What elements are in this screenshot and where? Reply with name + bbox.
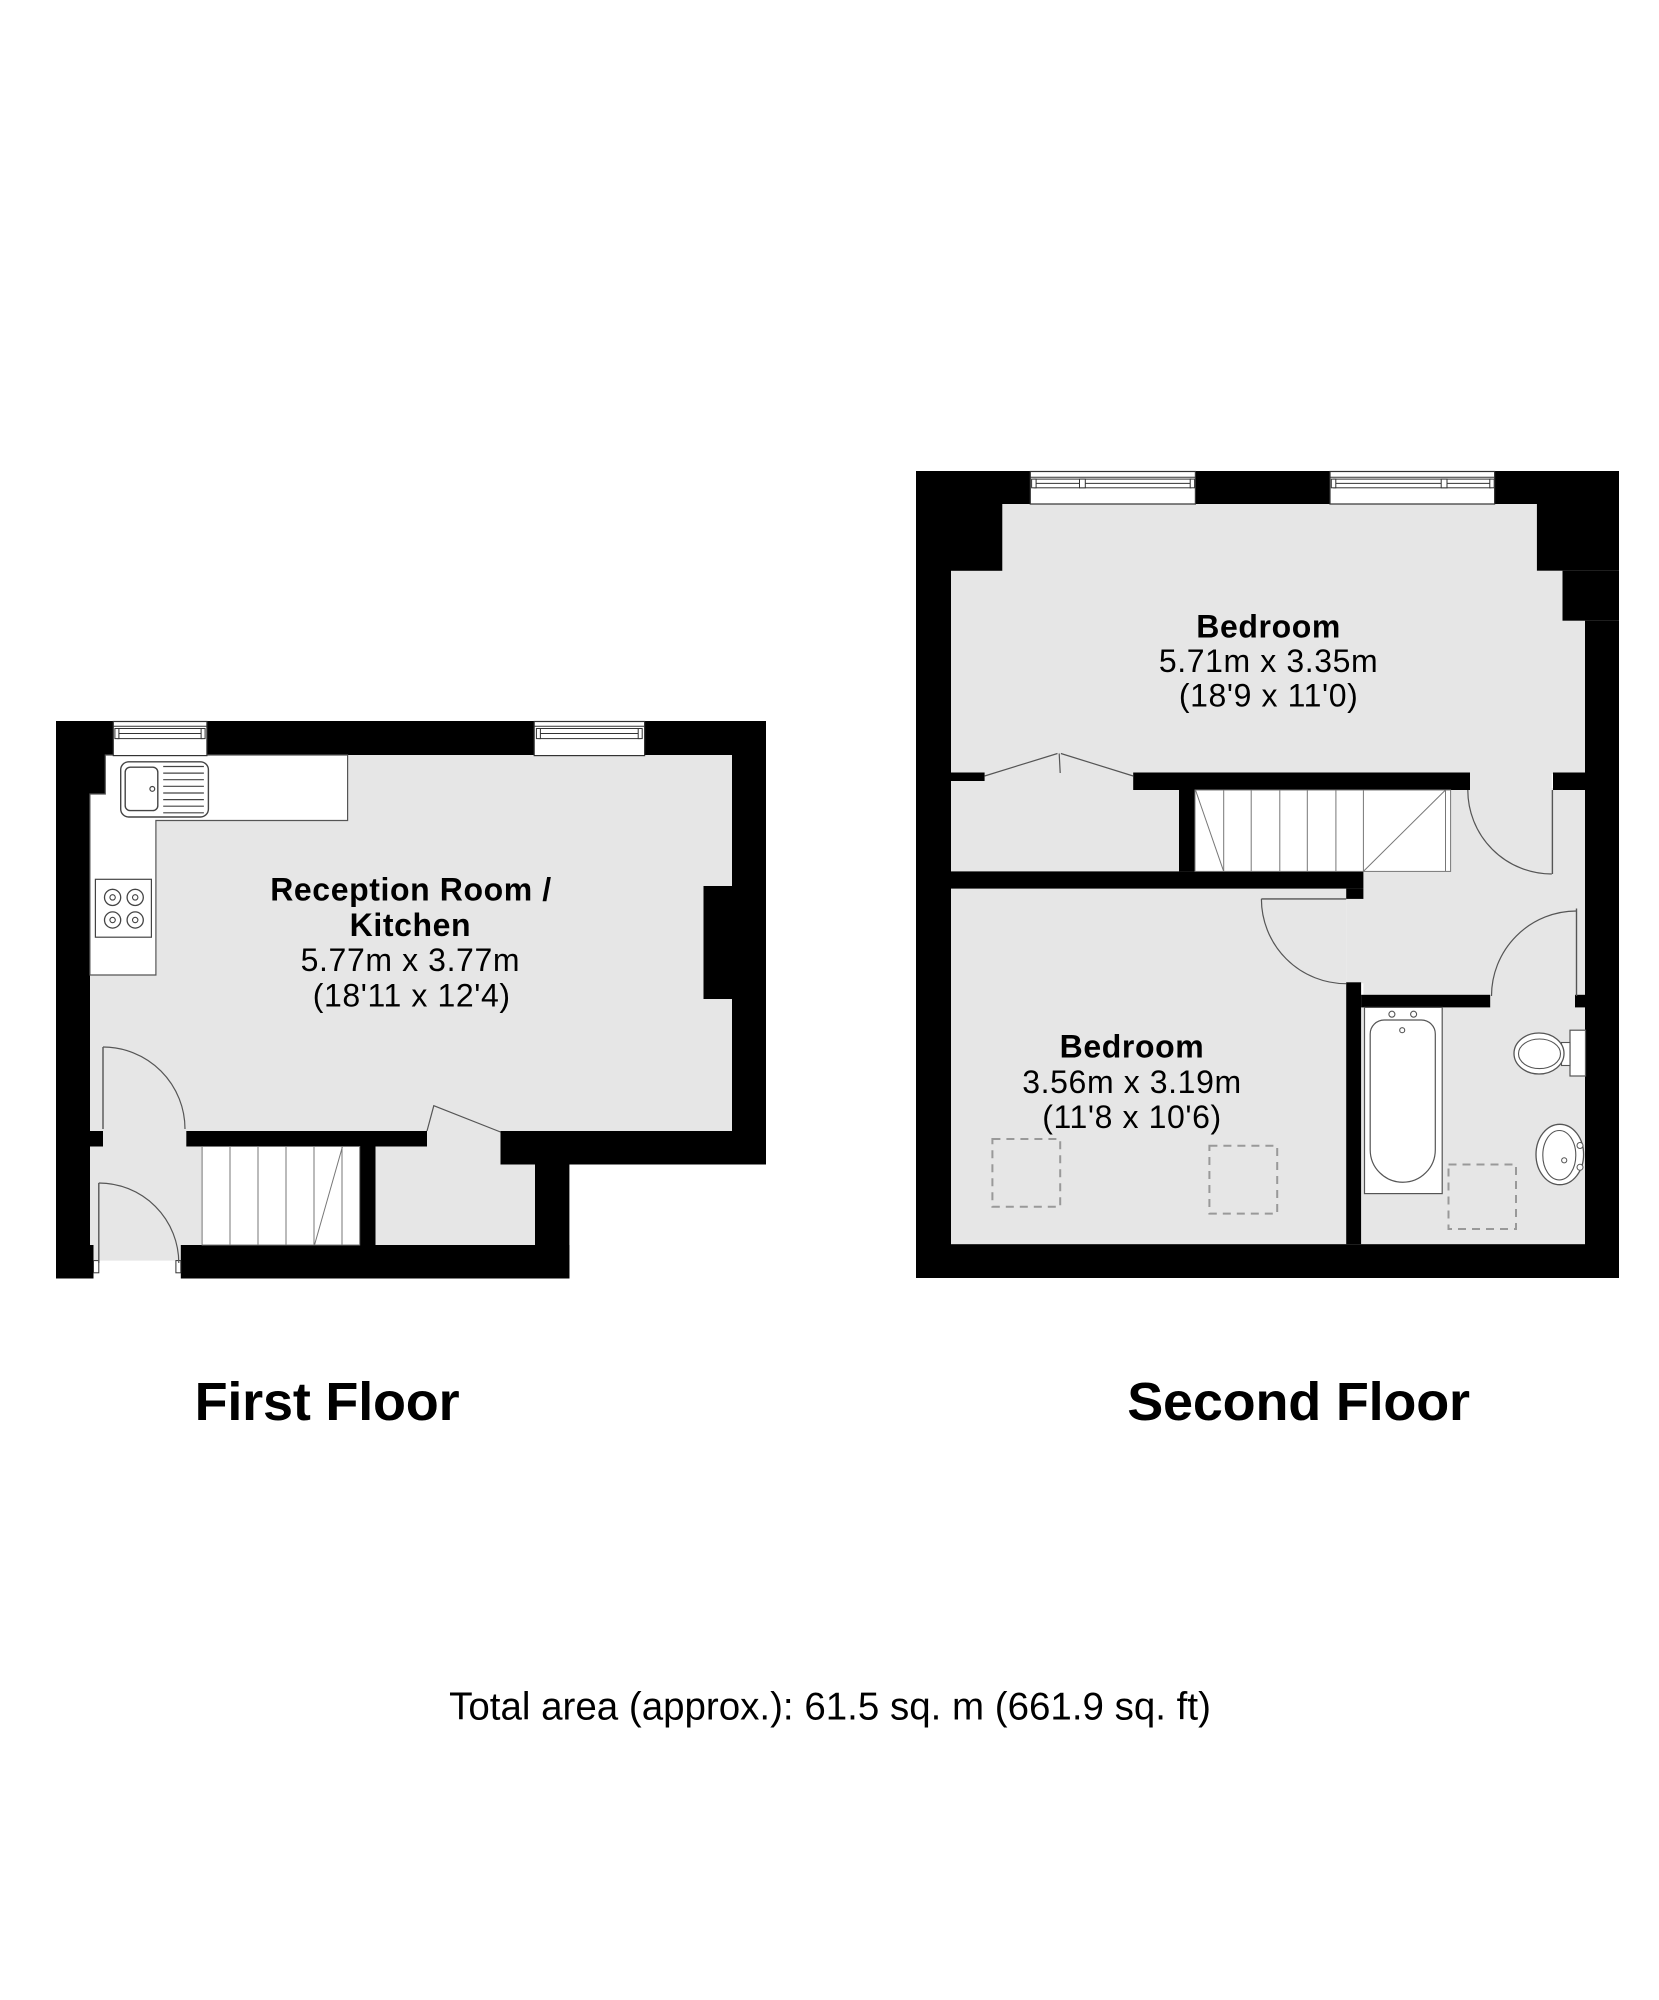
svg-text:Reception Room /: Reception Room / [270, 872, 552, 908]
svg-text:(18'9 x 11'0): (18'9 x 11'0) [1179, 678, 1359, 714]
svg-text:5.71m x 3.35m: 5.71m x 3.35m [1159, 643, 1378, 679]
svg-text:3.56m x 3.19m: 3.56m x 3.19m [1022, 1064, 1241, 1100]
svg-text:Bedroom: Bedroom [1060, 1029, 1205, 1065]
svg-text:Bedroom: Bedroom [1196, 608, 1341, 644]
svg-text:5.77m x 3.77m: 5.77m x 3.77m [301, 942, 520, 978]
svg-text:Kitchen: Kitchen [350, 907, 472, 943]
svg-text:(11'8 x 10'6): (11'8 x 10'6) [1042, 1099, 1222, 1135]
svg-text:Second Floor: Second Floor [1127, 1372, 1470, 1432]
svg-text:First Floor: First Floor [195, 1372, 460, 1432]
svg-text:Total area (approx.): 61.5 sq.: Total area (approx.): 61.5 sq. m (661.9 … [449, 1686, 1211, 1729]
svg-text:(18'11 x 12'4): (18'11 x 12'4) [313, 977, 511, 1013]
